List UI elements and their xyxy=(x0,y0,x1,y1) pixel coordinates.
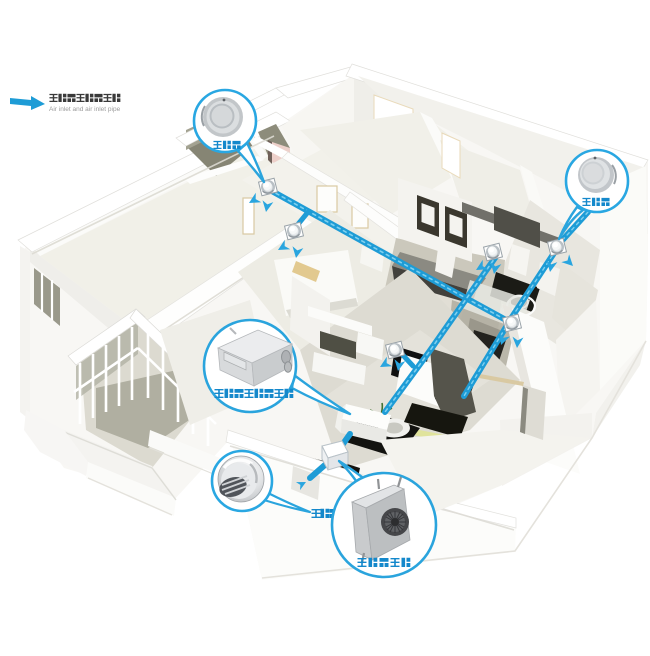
svg-text:Air inlet and air inlet pipe: Air inlet and air inlet pipe xyxy=(49,106,121,113)
